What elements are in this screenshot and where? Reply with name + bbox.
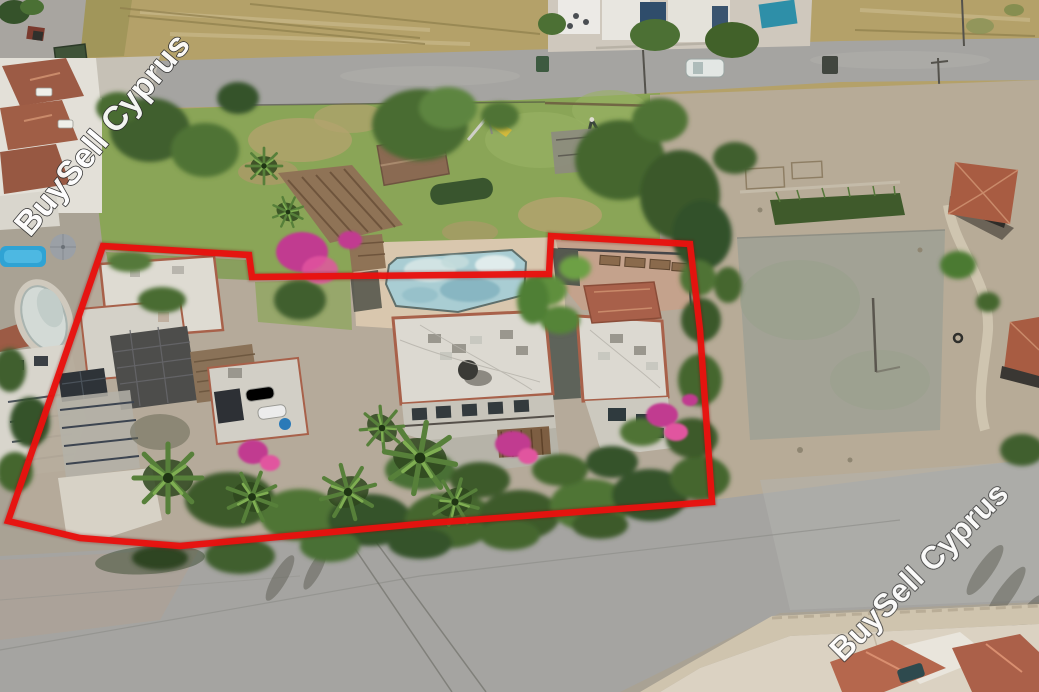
villa-roof-east [577,316,668,401]
villa-roof-main [393,311,553,404]
tiled-hip-roof [584,282,661,323]
dark-bin [822,56,838,74]
solar-heater [58,120,73,128]
green-bin [536,56,549,72]
teal-awning [759,0,798,28]
solar-heater [36,88,52,96]
aerial-photo-stage: BuySell Cyprus BuySell Cyprus [0,0,1039,692]
patio-umbrella [50,234,76,260]
white-car [686,59,724,77]
aerial-photo: BuySell Cyprus BuySell Cyprus [0,0,1039,692]
satellite-dish [458,360,478,380]
blue-barrel [279,418,291,430]
concrete-pad [737,230,945,440]
top-left-corner [0,0,87,64]
west-balcony [56,390,140,478]
equipment-roof [208,358,308,444]
tractor [26,26,45,41]
